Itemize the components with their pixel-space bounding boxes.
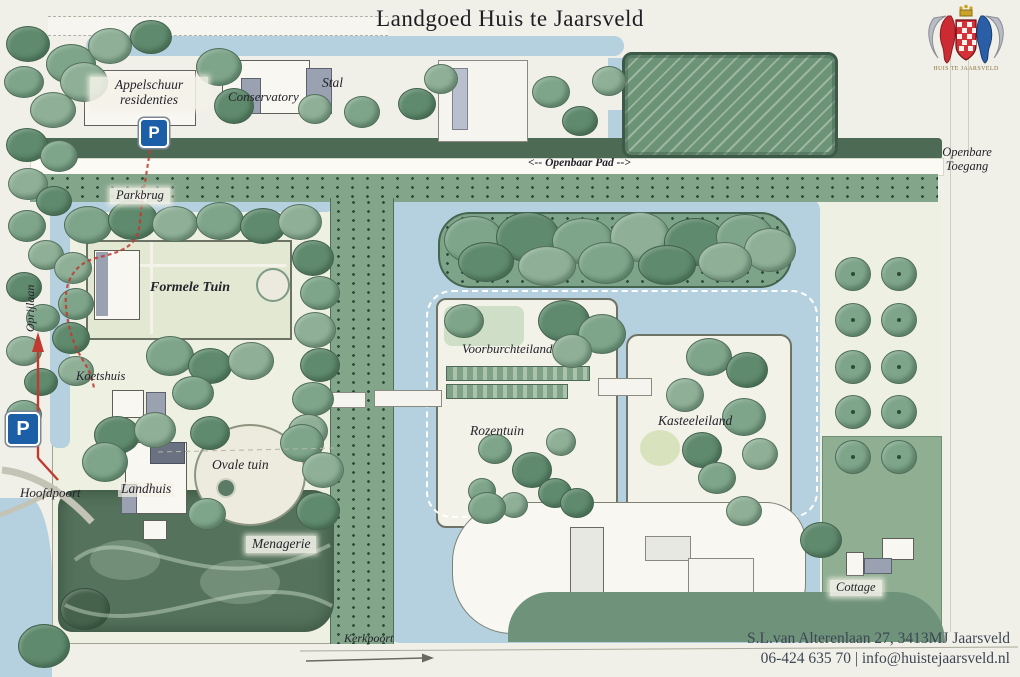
bridge-west (374, 390, 442, 407)
tree-trunk-dot (851, 455, 855, 459)
tree (424, 64, 458, 94)
tree (88, 28, 132, 64)
tree (444, 304, 484, 338)
cottage-building (882, 538, 914, 560)
tree (24, 368, 58, 396)
bridge-east (598, 378, 652, 396)
tree (188, 498, 226, 530)
tree (6, 336, 42, 366)
tree (835, 395, 871, 429)
tree (560, 488, 594, 518)
label-kerkpoort: Kerkpoort (344, 632, 393, 645)
fountain (216, 478, 236, 498)
label-hoofdpoort: Hoofdpoort (20, 486, 81, 500)
label-conservatory: Conservatory (228, 90, 299, 104)
label-voorburchteiland: Voorburchteiland (462, 342, 553, 356)
tree (60, 588, 110, 630)
tree-trunk-dot (851, 272, 855, 276)
tree (146, 336, 194, 376)
tree (134, 412, 176, 448)
orangery-roof (96, 252, 108, 316)
label-appelschuur: Appelschuur residenties (90, 77, 208, 109)
label-ovale-tuin: Ovale tuin (212, 458, 269, 473)
tree (546, 428, 576, 456)
tree (666, 378, 704, 412)
parking-letter: P (148, 123, 159, 143)
tree (881, 257, 917, 291)
tree (298, 94, 332, 124)
spit-building (688, 558, 754, 594)
tree (36, 186, 72, 216)
kerkpoort-arrowhead (422, 654, 434, 663)
tree (302, 452, 344, 488)
label-koetshuis: Koetshuis (76, 370, 125, 384)
crest-caption: HUIS TE JAARSVELD (918, 66, 1014, 73)
woodland-block (622, 52, 838, 158)
tree (82, 442, 128, 482)
tree (578, 242, 634, 284)
tree-trunk-dot (897, 365, 901, 369)
parking-sign: P (6, 412, 40, 446)
tree (835, 303, 871, 337)
tree (518, 246, 576, 286)
koetshuis-building (112, 390, 144, 418)
tree (54, 252, 92, 284)
label-rozentuin: Rozentuin (470, 424, 524, 439)
tree (228, 342, 274, 380)
tree (108, 200, 158, 240)
parking-letter: P (16, 418, 29, 441)
label-kasteeleiland: Kasteeleiland (658, 414, 732, 429)
tree (64, 206, 112, 244)
page-title: Landgoed Huis te Jaarsveld (0, 6, 1020, 32)
tree (698, 462, 736, 494)
label-appelschuur-line1: Appelschuur (96, 78, 202, 93)
label-formele-tuin: Formele Tuin (150, 280, 230, 295)
label-openbaar-pad: <-- Openbaar Pad --> (528, 157, 631, 170)
tree (726, 352, 768, 388)
tree (292, 240, 334, 276)
tree (172, 376, 214, 410)
tree (468, 492, 506, 524)
label-openbare-toegang: Openbare Toegang (928, 146, 1006, 174)
tree (532, 76, 570, 108)
cottage-annex (846, 552, 864, 576)
tree (398, 88, 436, 120)
label-menagerie: Menagerie (246, 536, 316, 553)
tree (58, 288, 94, 320)
tree-trunk-dot (897, 318, 901, 322)
kerkpoort-path-arrow (306, 658, 424, 661)
tree (638, 245, 696, 285)
label-landhuis: Landhuis (118, 482, 174, 497)
spit-building (645, 536, 691, 561)
tree (52, 322, 90, 354)
tree-trunk-dot (897, 272, 901, 276)
tree (592, 66, 626, 96)
label-cottage: Cottage (830, 580, 882, 596)
tree (726, 496, 762, 526)
tree-trunk-dot (851, 410, 855, 414)
survey-line (950, 38, 951, 632)
tree (292, 382, 334, 416)
tree (562, 106, 598, 136)
tree (835, 350, 871, 384)
tree (698, 242, 752, 282)
tree (8, 210, 46, 242)
tree (742, 438, 778, 470)
tree (296, 492, 340, 530)
tree (300, 276, 340, 310)
footer-contact: 06-424 635 70 | info@huistejaarsveld.nl (761, 650, 1010, 668)
cottage-roof (864, 558, 892, 574)
tree-trunk-dot (897, 410, 901, 414)
forest-clearing (90, 540, 160, 580)
tree (881, 440, 917, 474)
tree (744, 228, 796, 272)
label-oprijlaan: Oprijlaan (24, 248, 37, 332)
tree (458, 242, 514, 282)
tree-trunk-dot (851, 318, 855, 322)
tree (300, 348, 340, 382)
tree (800, 522, 842, 558)
tree (152, 206, 198, 242)
tree (881, 395, 917, 429)
tree (196, 202, 244, 240)
tree (18, 624, 70, 668)
lane-vertical (330, 198, 394, 644)
estate-map: HUIS TE JAARSVELD P P Appelschuur reside… (0, 0, 1020, 677)
tree (881, 350, 917, 384)
tree-trunk-dot (851, 365, 855, 369)
tree (881, 303, 917, 337)
label-stal: Stal (322, 76, 343, 91)
tree (344, 96, 380, 128)
tree (190, 416, 230, 450)
tree (4, 66, 44, 98)
tree (835, 440, 871, 474)
tree (552, 334, 592, 368)
tree (835, 257, 871, 291)
outbuilding (143, 520, 167, 540)
forest-clearing (200, 560, 280, 604)
tree (40, 140, 78, 172)
parking-sign: P (139, 118, 169, 148)
footer-address: S.L.van Alterenlaan 27, 3413MJ Jaarsveld (747, 630, 1010, 648)
label-appelschuur-line2: residenties (96, 93, 202, 108)
tree (294, 312, 336, 348)
tree (278, 204, 322, 240)
label-parkbrug: Parkbrug (110, 188, 170, 204)
garden-rondpoint (256, 268, 290, 302)
tree-trunk-dot (897, 455, 901, 459)
